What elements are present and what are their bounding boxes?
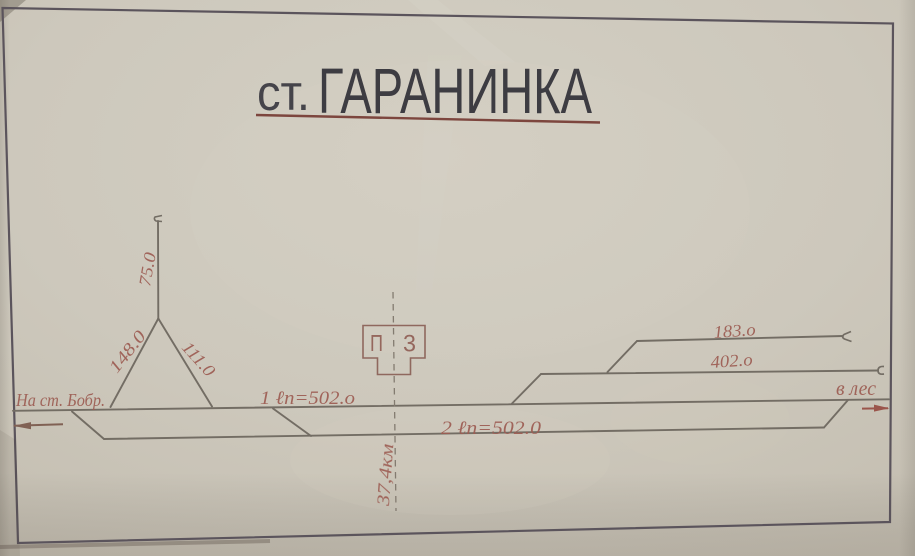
svg-text:в лес: в лес — [836, 378, 876, 400]
svg-text:402.о: 402.о — [710, 349, 754, 372]
svg-text:ст.: ст. — [257, 65, 310, 121]
svg-text:183.о: 183.о — [713, 319, 757, 342]
svg-text:1 ℓп=502.о: 1 ℓп=502.о — [260, 388, 355, 409]
svg-text:На ст. Бобр.: На ст. Бобр. — [15, 390, 105, 410]
svg-text:2 ℓп=502.0: 2 ℓп=502.0 — [441, 418, 542, 439]
svg-text:П: П — [370, 330, 383, 356]
svg-text:3: 3 — [403, 331, 416, 358]
